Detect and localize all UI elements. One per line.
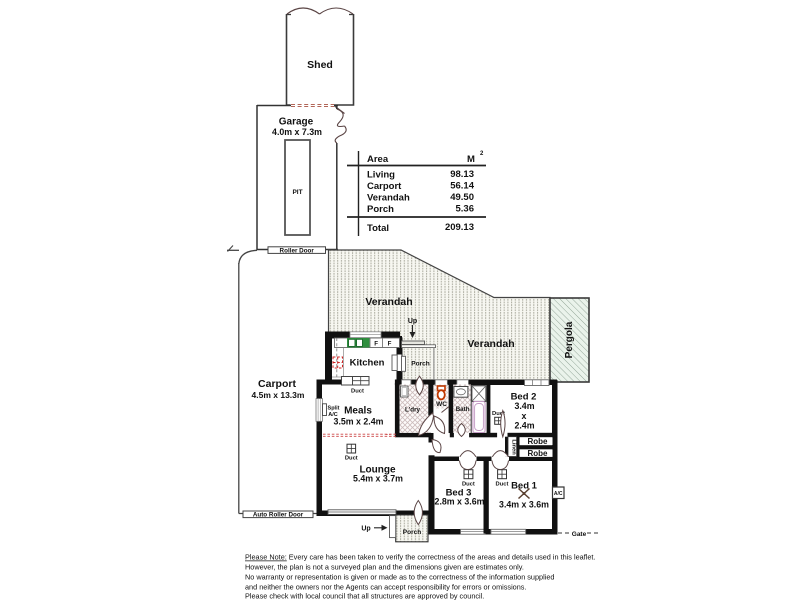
svg-text:WC: WC [436,401,447,408]
svg-text:Roller Door: Roller Door [280,248,315,255]
svg-text:49.50: 49.50 [450,192,474,203]
svg-text:Verandah: Verandah [367,193,410,204]
svg-text:A/C: A/C [554,491,563,497]
svg-text:Gate: Gate [572,531,587,538]
svg-text:L'dry: L'dry [405,407,420,414]
svg-text:Linen: Linen [510,439,516,455]
svg-text:Shed: Shed [307,59,333,71]
svg-text:F: F [374,341,378,348]
svg-text:Porch: Porch [367,204,394,215]
svg-text:However, the plan is not a sur: However, the plan is not a surveyed plan… [245,563,524,572]
svg-text:Porch: Porch [411,361,429,368]
svg-text:Kitchen: Kitchen [350,358,385,369]
svg-text:Duct: Duct [345,456,358,462]
svg-text:4.5m x 13.3m: 4.5m x 13.3m [252,390,305,400]
svg-text:209.13: 209.13 [445,222,474,233]
svg-text:F: F [388,341,392,348]
svg-text:Pergola: Pergola [564,321,575,358]
svg-text:Please check with local counci: Please check with local council that all… [245,592,484,600]
svg-text:98.13: 98.13 [450,169,474,180]
svg-text:56.14: 56.14 [450,181,474,192]
svg-text:Robe: Robe [528,449,549,458]
svg-text:2.8m x 3.6m: 2.8m x 3.6m [435,497,485,507]
svg-text:Porch: Porch [403,529,421,536]
svg-text:A/C: A/C [328,412,338,418]
svg-text:Verandah: Verandah [467,338,514,350]
svg-text:Duct: Duct [462,482,475,488]
svg-text:Robe: Robe [528,437,549,446]
svg-text:Bath: Bath [456,406,470,413]
svg-text:and neither the owners nor the: and neither the owners nor the Agents ca… [245,583,526,592]
svg-text:Carport: Carport [367,181,402,192]
svg-text:3.4m: 3.4m [514,401,534,411]
svg-text:3.5m x 2.4m: 3.5m x 2.4m [334,417,384,427]
svg-text:5.4m x 3.7m: 5.4m x 3.7m [353,474,403,484]
svg-text:Living: Living [367,170,395,181]
svg-text:Up: Up [361,526,370,533]
svg-text:Area: Area [367,154,389,165]
svg-text:Total: Total [367,223,389,234]
svg-text:Meals: Meals [344,406,372,417]
svg-text:Up: Up [408,318,417,325]
svg-text:PIT: PIT [292,189,302,196]
svg-text:Carport: Carport [258,378,296,390]
svg-text:No warranty or representation: No warranty or representation is given o… [245,573,554,582]
svg-text:Verandah: Verandah [365,296,412,308]
svg-text:Split: Split [328,406,340,412]
svg-text:Auto Roller Door: Auto Roller Door [253,512,304,519]
svg-text:5.36: 5.36 [456,204,475,215]
svg-text:2.4m: 2.4m [514,421,534,431]
svg-text:3.4m x 3.6m: 3.4m x 3.6m [499,500,549,510]
svg-text:M: M [467,154,475,165]
svg-text:Please Note: Every care has: Please Note: Every care has been taken t… [245,553,595,562]
svg-text:Duct: Duct [351,389,364,395]
svg-text:Garage: Garage [279,117,314,128]
svg-text:x: x [522,411,527,421]
svg-text:Bed 1: Bed 1 [511,481,538,492]
svg-text:Duct: Duct [496,482,509,488]
svg-text:4.0m x 7.3m: 4.0m x 7.3m [272,127,322,137]
